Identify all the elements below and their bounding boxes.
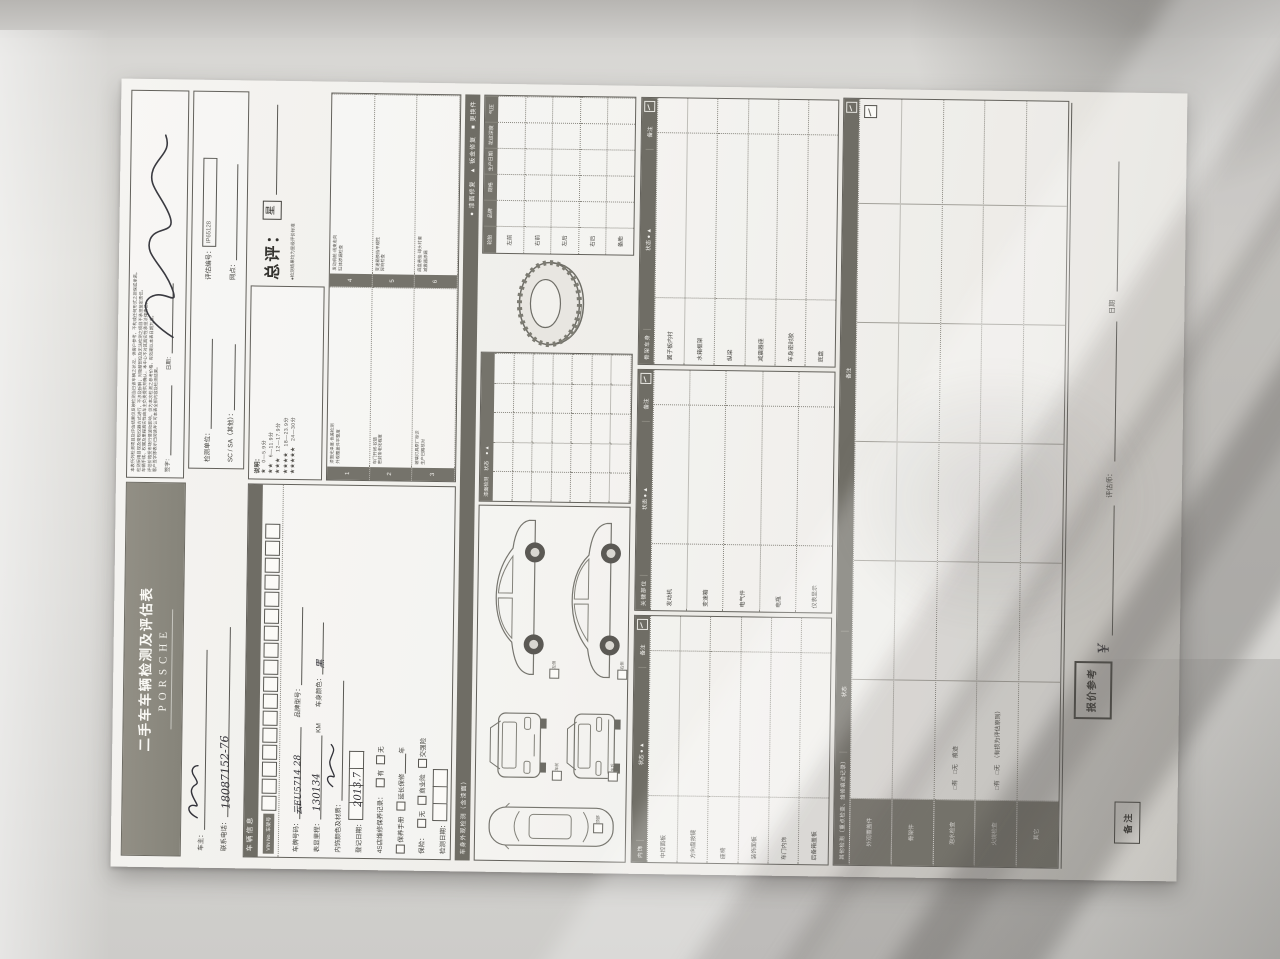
header-band: 二手车车辆检测及评估表 PORSCHE 本表所列检测项目及评估结果仅反映检测当日… xyxy=(121,90,190,857)
extended-years-line xyxy=(396,753,406,773)
item-label: 底盘 xyxy=(805,300,835,366)
vin-box xyxy=(264,592,279,607)
evalno-label: 评估编号： xyxy=(205,247,212,280)
plate-line: 云EU5714 28 xyxy=(290,728,301,820)
section-row: 装饰面板 xyxy=(737,617,771,863)
scsa-line xyxy=(224,344,235,410)
unit-label: 检测单位： xyxy=(204,429,211,462)
tire-col: 生产日期 xyxy=(484,148,497,174)
item-label: 水箱框架 xyxy=(685,298,715,364)
item-label: 纵梁 xyxy=(715,299,745,365)
damage-row-label: 骨架件 xyxy=(891,799,933,866)
damage-row-note xyxy=(1018,101,1069,802)
item-label: 中控面板 xyxy=(648,796,678,862)
unit-row: 检测单位： xyxy=(201,280,214,462)
section-row: 电气件 xyxy=(723,371,763,611)
car-side-view-left xyxy=(485,514,549,683)
interior-scrawl xyxy=(323,740,340,790)
mileage-value-handwriting: 130134 xyxy=(311,774,323,812)
damage-row-label: 其它 xyxy=(1017,801,1059,868)
brand-model-line xyxy=(292,607,303,685)
section-frame-body: 骨架车身 状态 ● ▲ 备注 翼子板内衬 水箱框架 纵梁 减震器座 车身密封胶 … xyxy=(638,97,840,368)
vin-box xyxy=(263,711,278,726)
inspection-form: 二手车车辆检测及评估表 PORSCHE 本表所列检测项目及评估结果仅反映检测当日… xyxy=(119,88,1180,873)
star-legend-box: 说明： ★ 0—5.9分 ★★ 6—11.9分 ★★★ 12—17.9分 ★★★… xyxy=(248,285,325,480)
section-row: 车身密封胶 xyxy=(774,100,808,366)
mileage-line: 130134 xyxy=(311,736,322,820)
color-label: 车身颜色： xyxy=(313,675,323,708)
checkbox-ins-none xyxy=(417,819,426,828)
damage-row-label: 火烧检查 xyxy=(975,801,1017,868)
phone-row: 联系电话： 18087152-76 xyxy=(217,479,232,851)
banner-rule xyxy=(170,609,173,729)
stamp-box-icon xyxy=(644,101,655,112)
section-row: 车门内饰 xyxy=(767,618,801,864)
extended-label: 延长保修 xyxy=(396,773,406,799)
checkbox-yes xyxy=(376,778,385,787)
title-banner: 二手车车辆检测及评估表 PORSCHE xyxy=(121,482,186,857)
section-remark-label: 备注 xyxy=(645,115,653,150)
item-label: 方向盘按键 xyxy=(678,796,708,862)
stamp-box-icon xyxy=(637,619,648,630)
overall-footnote: ●检测结果均为星级评价标准 xyxy=(290,92,299,280)
disclaimer-block: 本表所列检测项目及评估结果仅反映检测当日该车辆之状况，供客户参考，不构成任何形式… xyxy=(126,90,189,479)
km-unit: KM xyxy=(315,723,322,733)
sections-band: 内饰 状态 ● ▲ 备注 中控面板 方向盘按键 座椅 装饰面板 车门内饰 后备箱… xyxy=(631,97,840,866)
ins-compulsory-label: 交强险 xyxy=(417,738,427,758)
rating-row: 说明： ★ 0—5.9分 ★★ 6—11.9分 ★★★ 12—17.9分 ★★★… xyxy=(248,91,327,480)
ins-none-label: 无 xyxy=(416,811,426,818)
score-cell: 车门开闭·铰链 密封条老化程度 xyxy=(370,287,415,468)
vin-box xyxy=(262,728,277,743)
scsa-label: SC / SA（其他）： xyxy=(227,410,235,462)
section-status-label: 状态 ● ▲ xyxy=(639,422,649,576)
view-checkbox xyxy=(617,670,627,680)
damage-title: 其他检测（重点检查、维修痕迹记录） xyxy=(837,753,847,865)
score-no: 1 xyxy=(327,467,370,481)
score-no: 3 xyxy=(412,468,455,482)
view-label: 左侧 xyxy=(551,661,557,669)
tire-col: 花纹深度 xyxy=(485,122,498,148)
score-cell: 底盘悬挂·球头衬套 减震器渗漏 xyxy=(415,95,460,276)
site-label: 网点： xyxy=(229,261,236,281)
section-row: 变速箱 xyxy=(686,371,726,611)
unit-fields: 检测单位： 评估编号：IP65128 SC / SA（其他）： 网点： xyxy=(188,91,249,470)
tire-row-label: 右后 xyxy=(579,227,606,254)
form-title: 二手车车辆检测及评估表 xyxy=(133,586,155,751)
owner-line xyxy=(195,649,208,829)
plate-row: 车牌号码： 云EU5714 28 品牌型号： xyxy=(279,485,305,857)
damage-row-label: 外观覆盖件 xyxy=(850,799,892,866)
vin-box xyxy=(264,609,279,624)
stamp-box-icon xyxy=(864,105,877,118)
brand-wordmark: PORSCHE xyxy=(157,627,170,712)
item-label: 减震器座 xyxy=(745,299,775,365)
assessor-line xyxy=(1105,322,1117,462)
section-row: 电瓶 xyxy=(759,372,799,612)
vin-box xyxy=(262,745,277,760)
owner-name-scrawl xyxy=(183,761,204,821)
date-line xyxy=(163,284,174,354)
vin-box xyxy=(262,762,277,777)
plate-value-handwriting: 云EU5714 28 xyxy=(290,755,304,816)
vehicle-band: 车辆信息 VIN No. 车架号 车牌号码： 云EU5714 28 品牌型号： … xyxy=(243,91,462,860)
paper-sheet: 二手车车辆检测及评估表 PORSCHE 本表所列检测项目及评估结果仅反映检测当日… xyxy=(111,79,1188,882)
score-cell: 发动机舱·线束走向 缸体渗漏检查 xyxy=(330,94,375,275)
section-row: 仪表显示 xyxy=(795,372,835,612)
section-row: 后备箱盖板 xyxy=(798,618,832,864)
vin-box xyxy=(263,677,278,692)
ins-commercial-label: 商业险 xyxy=(417,774,427,794)
no-label: 无 xyxy=(375,746,385,753)
damage-table: 其他检测（重点检查、维修痕迹记录） 状态 备注 外观覆盖件 骨架件 泡水检查□有… xyxy=(833,98,1070,869)
vin-label: VIN No. 车架号 xyxy=(263,814,275,854)
interior-line xyxy=(332,681,344,801)
tire-row-label: 左前 xyxy=(496,226,523,253)
photo-scene: 二手车车辆检测及评估表 PORSCHE 本表所列检测项目及评估结果仅反映检测当日… xyxy=(0,0,1280,959)
score-cell: 变速箱换挡平顺性 异响检查 xyxy=(373,94,418,275)
diagram-band: 顶部 车前 xyxy=(474,95,637,863)
yen-handwriting: ¥ xyxy=(1095,644,1113,654)
yes-label: 有 xyxy=(375,770,385,777)
owner-band: 车主： 联系电话： 18087152-76 检测单位： 评估编号 xyxy=(183,91,250,858)
section-status-label: 状态 ● ▲ xyxy=(635,668,645,841)
item-label: 电气件 xyxy=(724,545,760,611)
score-no: 4 xyxy=(330,274,373,288)
tire-row: 备胎 xyxy=(607,97,636,254)
score-cell: 漆面光泽度·色差检测 外观覆盖件平整度 xyxy=(327,287,372,468)
view-checkbox xyxy=(552,771,562,781)
check-date-row: 检测日期： xyxy=(426,487,452,859)
sign-label: 签字： xyxy=(165,456,171,473)
tire-illustration-wrap xyxy=(481,257,634,351)
section-row: 中控面板 xyxy=(647,616,681,862)
section-title: 骨架车身 xyxy=(642,330,650,364)
brand-model-label: 品牌型号： xyxy=(292,685,302,718)
car-side-view-right xyxy=(561,515,625,684)
item-label: 发动机 xyxy=(651,544,687,610)
reg-date-handwriting: 2013.7 xyxy=(352,772,364,807)
phone-label: 联系电话： xyxy=(220,819,227,852)
score-no: 5 xyxy=(372,274,415,288)
vin-box xyxy=(264,575,279,590)
quote-reference-box: 报价参考 xyxy=(1074,661,1113,720)
section-row: 方向盘按键 xyxy=(677,616,711,862)
remark-box: 备注 xyxy=(1114,802,1141,844)
insurance-label: 保险： xyxy=(416,834,426,854)
site-line xyxy=(227,165,238,261)
paint-status-label: 状态 xyxy=(483,461,490,471)
view-checkbox xyxy=(593,823,603,833)
stamp-box-icon xyxy=(640,373,651,384)
car-diagram-panel: 顶部 车前 xyxy=(474,505,631,863)
section-title: 内饰 xyxy=(635,841,643,862)
sign-row: 签字： 日期： xyxy=(161,96,176,472)
section-interior: 内饰 状态 ● ▲ 备注 中控面板 方向盘按键 座椅 装饰面板 车门内饰 后备箱… xyxy=(631,615,832,866)
view-label: 车后 xyxy=(610,763,616,771)
section-row: 翼子板内衬 xyxy=(654,98,688,364)
owner-fields: 车主： 联系电话： 18087152-76 xyxy=(183,473,244,858)
color-value-handwriting: 黑 xyxy=(313,660,326,669)
tire-row: 左后 xyxy=(551,97,581,254)
view-label: 车前 xyxy=(554,763,560,771)
section-row: 底盘 xyxy=(804,100,838,366)
section-row: 减震器座 xyxy=(744,99,778,365)
color-line: 黑 xyxy=(313,623,324,675)
tire-row-label: 左后 xyxy=(551,227,578,254)
vin-box xyxy=(265,541,280,556)
paint-status-symbols: ● ▲ xyxy=(484,445,490,454)
unit-line xyxy=(201,339,212,429)
vehicle-info-panel: 车辆信息 VIN No. 车架号 车牌号码： 云EU5714 28 品牌型号： … xyxy=(243,483,456,860)
assessor-label: 评估师： xyxy=(1105,470,1115,498)
checkbox-no xyxy=(376,755,385,764)
item-label: 翼子板内衬 xyxy=(655,298,685,364)
section-row: 座椅 xyxy=(707,617,741,863)
section-row: 水箱框架 xyxy=(684,99,718,365)
score-no: 2 xyxy=(370,467,413,481)
view-label: 右侧 xyxy=(619,662,625,670)
vin-box xyxy=(264,626,279,641)
vin-box xyxy=(263,660,278,675)
quote-row: 报价参考 ¥ 评估师： 日期 xyxy=(1074,161,1120,719)
manual-label: 保养手册 xyxy=(395,816,405,842)
item-label: 电瓶 xyxy=(760,546,796,612)
damage-row-label: 泡水检查 xyxy=(933,800,975,867)
rating-panel: 说明： ★ 0—5.9分 ★★ 6—11.9分 ★★★ 12—17.9分 ★★★… xyxy=(248,91,461,482)
date-label: 日期： xyxy=(166,354,172,371)
mileage-label: 表显里程： xyxy=(311,820,321,853)
phone-line: 18087152-76 xyxy=(218,627,231,817)
section-status-label: 状态 ● ▲ xyxy=(643,150,654,330)
desk-left-light xyxy=(0,30,110,959)
desk-top-shadow xyxy=(0,0,1280,38)
service-record-label: 4S店维修保养记录： xyxy=(374,793,385,853)
site-row: 网点： xyxy=(226,98,239,280)
checkbox-manual xyxy=(396,845,405,854)
item-label: 车门内饰 xyxy=(768,798,798,864)
item-label: 座椅 xyxy=(708,797,738,863)
footer-band: 报价参考 ¥ 评估师： 日期 备注 xyxy=(1061,103,1177,870)
vin-box xyxy=(263,694,278,709)
tire-row-label: 备胎 xyxy=(607,227,634,254)
tire-row-label: 右前 xyxy=(524,226,551,253)
legend-line: ★★★★★ 24—30分 xyxy=(290,292,300,474)
section-row: 纵梁 xyxy=(714,99,748,365)
footer-date-label: 日期 xyxy=(1107,300,1117,314)
section-row: 发动机 xyxy=(650,370,690,610)
damage-col-status: 状态 xyxy=(839,632,849,753)
evalno-row: 评估编号：IP65128 xyxy=(201,98,218,280)
check-date-label: 检测日期： xyxy=(437,822,447,855)
quote-line xyxy=(1103,506,1115,636)
stamp-box-icon xyxy=(846,102,857,113)
evalno-box: IP65128 xyxy=(202,158,217,247)
owner-label: 车主： xyxy=(197,831,204,851)
checkbox-ins-commercial xyxy=(417,796,426,805)
tire-col: 规格 xyxy=(484,174,497,200)
reg-date-label: 登记日期： xyxy=(353,820,363,853)
sign-line xyxy=(161,386,172,456)
interior-label: 内饰颜色及材质： xyxy=(332,801,343,853)
vin-box xyxy=(261,796,276,811)
phone-value-handwriting: 18087152-76 xyxy=(218,735,233,809)
score-table: 1 漆面光泽度·色差检测 外观覆盖件平整度 4 发动机舱·线束走向 缸体渗漏检查… xyxy=(326,93,461,483)
score-cell: 玻璃灯具原厂标识 生产日期核对 xyxy=(412,288,457,469)
vin-box xyxy=(263,643,278,658)
view-label: 顶部 xyxy=(595,815,601,823)
section-remark-label: 备注 xyxy=(641,387,649,422)
paint-check-table: 漆面检测 状态 ● ▲ xyxy=(479,352,633,504)
star-box: 星 xyxy=(262,201,281,220)
footer-date-line xyxy=(1108,162,1120,292)
view-checkbox xyxy=(549,669,559,679)
owner-row: 车主： xyxy=(194,479,209,851)
car-front-view xyxy=(486,706,549,785)
item-label: 变速箱 xyxy=(687,545,723,611)
tire-row: 右后 xyxy=(579,97,609,254)
item-label: 仪表显示 xyxy=(796,546,832,612)
section-title: 关键部位 xyxy=(639,576,647,610)
body-check-legend: ● 漆面修复 ▲ 钣金修复 ■ 更换件 xyxy=(467,100,478,215)
tire-row: 右前 xyxy=(524,96,554,253)
check-date-boxes xyxy=(432,770,448,822)
scsa-row: SC / SA（其他）： xyxy=(224,280,237,462)
overall-label: 总评： xyxy=(259,226,284,280)
tire-col: 品牌 xyxy=(484,200,497,226)
view-checkbox xyxy=(608,771,618,781)
tire-illustration xyxy=(497,258,618,350)
item-label: 车身密封胶 xyxy=(775,300,805,366)
tire-table: 轮胎 品牌 规格 生产日期 花纹深度 气压 左前 右前 左后 右后 备胎 xyxy=(482,95,636,256)
item-label: 后备箱盖板 xyxy=(799,798,829,864)
checkbox-ins-compulsory xyxy=(418,759,427,768)
tire-caption: 轮胎 xyxy=(486,235,493,245)
section-remark-label: 备注 xyxy=(638,633,646,668)
plate-label: 车牌号码： xyxy=(290,820,300,853)
checkbox-extended xyxy=(396,802,405,811)
vin-box xyxy=(262,779,277,794)
tire-row: 左前 xyxy=(496,96,526,253)
paint-title: 漆面检测 xyxy=(483,477,490,497)
paint-grid xyxy=(493,353,632,503)
vin-box xyxy=(265,524,280,539)
overall-rating: 总评： 星 ●检测结果均为星级评价标准 xyxy=(251,91,328,280)
overall-line-blank xyxy=(267,105,278,195)
body-check-title: 车身外观检测（含漆面） xyxy=(458,777,468,854)
overall-line: 总评： 星 xyxy=(259,92,286,280)
section-key-parts: 关键部位 状态 ● ▲ 备注 发动机 变速箱 电气件 电瓶 仪表显示 xyxy=(634,369,835,614)
item-label: 装饰面板 xyxy=(738,797,768,863)
score-no: 6 xyxy=(415,275,458,289)
vin-box xyxy=(265,558,280,573)
tire-col: 气压 xyxy=(485,96,498,122)
